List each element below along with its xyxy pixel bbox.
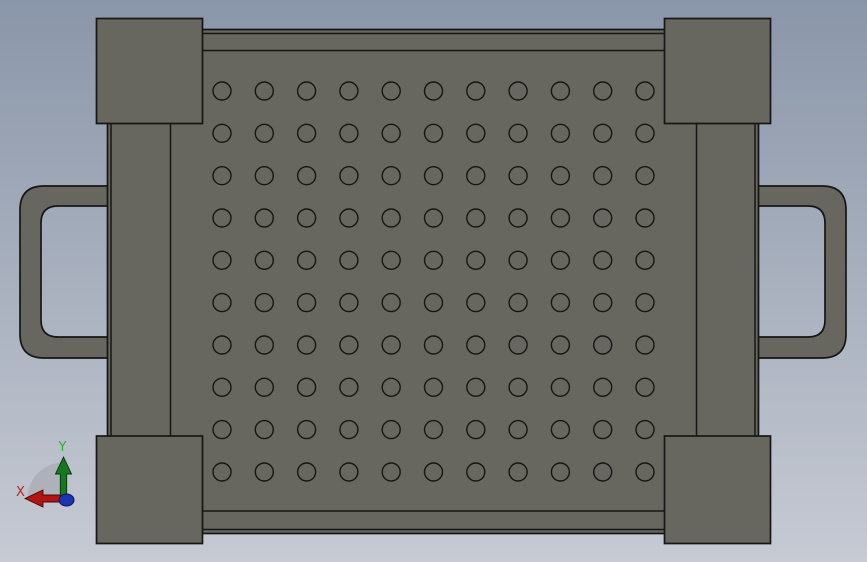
corner-bumper-bottom-left[interactable] [97,436,203,544]
corner-bumper-top-right[interactable] [665,19,771,124]
z-axis-ball[interactable] [59,494,74,506]
orientation-triad[interactable]: X Y [16,440,74,507]
tray-model[interactable] [20,19,846,544]
left-handle[interactable] [20,186,112,358]
right-handle[interactable] [754,186,846,358]
tray-body[interactable] [108,30,759,534]
corner-bumper-top-left[interactable] [97,19,203,124]
cad-canvas[interactable]: X Y [0,0,867,562]
x-axis-label: X [16,485,25,500]
cad-viewport[interactable]: X Y [0,0,867,562]
corner-bumper-bottom-right[interactable] [665,436,771,544]
y-axis-label: Y [58,440,67,455]
